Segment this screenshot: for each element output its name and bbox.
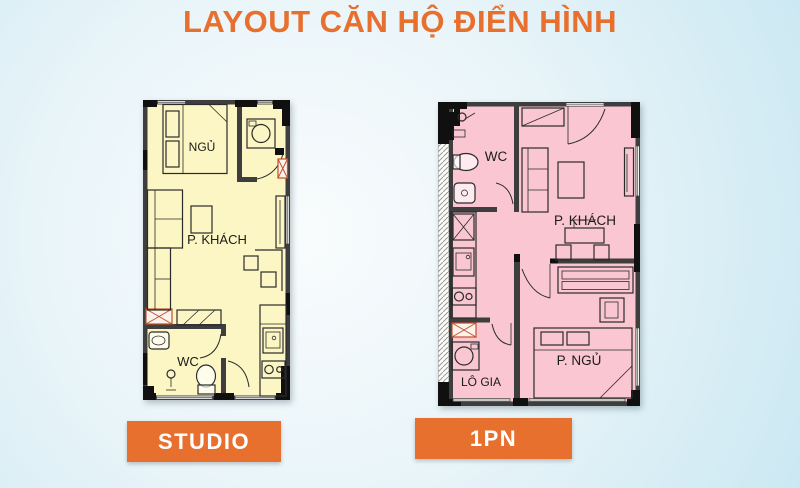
- page-title: LAYOUT CĂN HỘ ĐIỂN HÌNH: [0, 4, 800, 40]
- room-label-wc: WC: [485, 149, 508, 164]
- room-label-wc: WC: [177, 354, 199, 369]
- studio-floor-plan: NGỦ P. KHÁCH WC: [143, 100, 290, 400]
- room-label-loggia: LÔ GIA: [461, 374, 501, 389]
- layout-poster: LAYOUT CĂN HỘ ĐIỂN HÌNH: [0, 0, 800, 488]
- studio-button[interactable]: STUDIO: [127, 421, 281, 462]
- room-label-living: P. KHÁCH: [187, 232, 247, 247]
- room-label-bedroom: NGỦ: [189, 139, 216, 154]
- one-bedroom-button-label: 1PN: [470, 426, 517, 452]
- one-bedroom-button[interactable]: 1PN: [415, 418, 572, 459]
- one-bedroom-floor-plan: WC P. KHÁCH P. NGỦ LÔ GIA: [438, 102, 640, 406]
- one-bedroom-floor-plan-drawing: WC P. KHÁCH P. NGỦ LÔ GIA: [438, 102, 640, 406]
- corridor-wall-hatch: [438, 102, 449, 406]
- studio-button-label: STUDIO: [158, 429, 250, 455]
- studio-floor-plan-drawing: NGỦ P. KHÁCH WC: [143, 100, 290, 400]
- room-label-living: P. KHÁCH: [554, 213, 616, 228]
- room-label-bedroom: P. NGỦ: [557, 353, 602, 368]
